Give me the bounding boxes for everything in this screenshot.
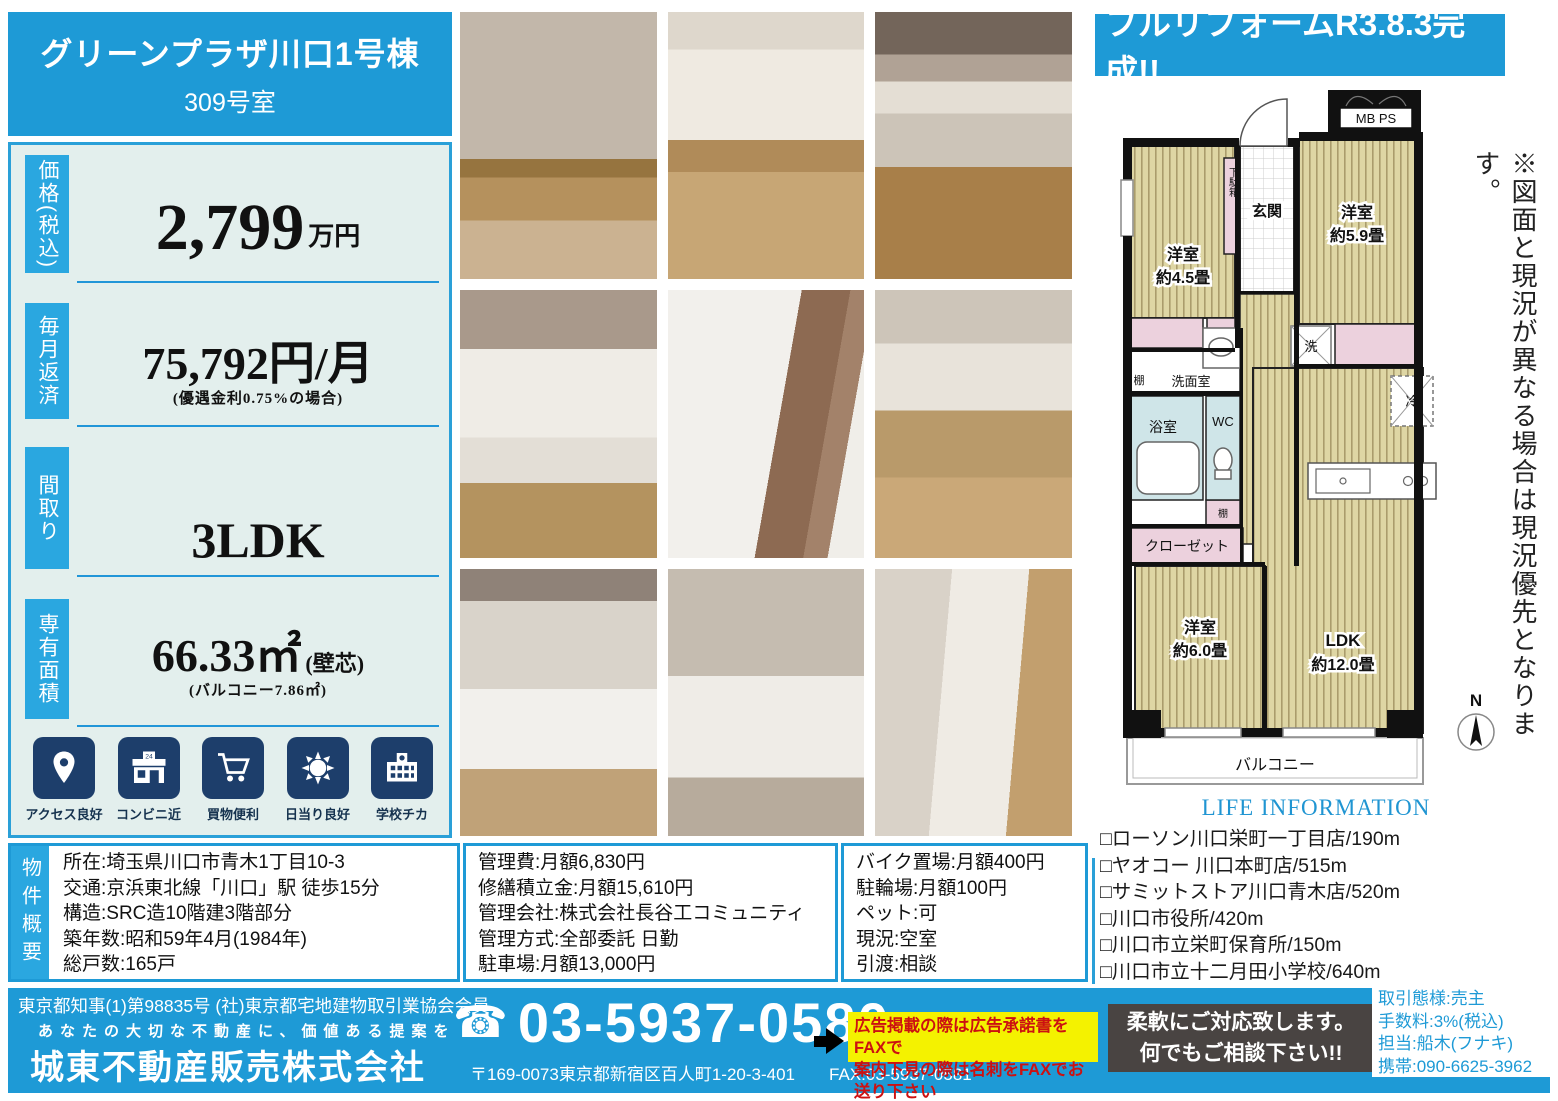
overview-line: 駐輪場:月額100円 (856, 876, 1081, 902)
fp-senmen-label: 洗面室 (1171, 374, 1210, 389)
fax-notice-line2: 案内下見の際は名刺をFAXでお送り下さい (854, 1059, 1092, 1101)
overview-line: 修繕積立金:月額15,610円 (478, 876, 831, 902)
fp-mbps-label: MB PS (1356, 111, 1397, 126)
monthly-row: 毎月返済 75,792円/月 (優遇金利0.75%の場合) (23, 303, 439, 427)
fp-tana2-label: 棚 (1218, 507, 1228, 520)
feature-access: アクセス良好 (25, 737, 103, 823)
life-item: □ヤオコー 川口本町店/515m (1100, 853, 1550, 880)
fp-washer-label: 洗 (1304, 339, 1317, 354)
photo-toilet (668, 569, 865, 836)
building-name: グリーンプラザ川口1号棟 (40, 29, 419, 75)
price-label: 価格(税込) (25, 155, 69, 273)
phone-icon: ☎ (453, 997, 508, 1048)
floor-plan: バルコニー 棚 下駄箱 棚 クローゼット 浴室 WC (1103, 88, 1445, 790)
message-line2: 何でもご相談下さい!! (1108, 1038, 1374, 1069)
fp-genkan-label: 玄関 (1252, 202, 1282, 220)
overview-tab: 物件概要 (11, 846, 49, 979)
agent-contact: 担当:船木(フナキ) (1378, 1033, 1558, 1056)
property-title-bar: グリーンプラザ川口1号棟 309号室 (8, 12, 452, 136)
overview-line: 管理方式:全部委託 日勤 (478, 927, 831, 953)
company-slogan: あなたの大切な不動産に、価値ある提案を (38, 1020, 456, 1041)
life-item: □川口市立栄町保育所/150m (1100, 932, 1550, 959)
sun-icon (287, 737, 349, 799)
feature-conbini-label: コンビニ近 (110, 804, 188, 823)
overview-line: 構造:SRC造10階建3階部分 (63, 901, 453, 927)
feature-school: 学校チカ (363, 737, 441, 823)
feature-school-label: 学校チカ (363, 804, 441, 823)
price-row: 価格(税込) 2,799 万円 (23, 155, 439, 283)
life-information-bracket (1092, 858, 1095, 984)
feature-conbini: 24 コンビニ近 (110, 737, 188, 823)
overview-line: 総戸数:165戸 (63, 952, 453, 978)
photo-living-counter (668, 12, 865, 279)
arrow-right-icon (814, 1028, 844, 1054)
area-note: (バルコニー7.86㎡) (77, 679, 439, 700)
overview-line: ペット:可 (856, 901, 1081, 927)
price-value: 2,799 (156, 191, 305, 264)
renovation-banner: フルリフォームR3.8.3完成!! (1095, 14, 1505, 76)
location-pin-icon (33, 737, 95, 799)
overview-line: 引渡:相談 (856, 952, 1081, 978)
feature-access-label: アクセス良好 (25, 804, 103, 823)
school-icon (371, 737, 433, 799)
compass-n-label: N (1470, 691, 1482, 710)
fp-bath-label: 浴室 (1149, 419, 1177, 435)
fp-room1-label: 洋室 (1167, 245, 1199, 264)
photo-entrance-hallway (460, 12, 657, 279)
photo-room-closet (875, 569, 1072, 836)
life-item: □サミットストア川口青木店/520m (1100, 879, 1550, 906)
fp-room2-size: 約5.9畳 (1330, 226, 1384, 245)
area-value-area: 66.33㎡ (壁芯) (バルコニー7.86㎡) (77, 603, 439, 727)
overview-line: 管理費:月額6,830円 (478, 850, 831, 876)
life-item: □ローソン川口栄町一丁目店/190m (1100, 826, 1550, 853)
overview-box-1: 物件概要 所在:埼玉県川口市青木1丁目10-3 交通:京浜東北線「川口」駅 徒歩… (8, 843, 460, 982)
agent-fee: 手数料:3%(税込) (1378, 1011, 1558, 1034)
message-box: 柔軟にご対応致します。 何でもご相談下さい!! (1108, 1004, 1374, 1072)
overview-line: 築年数:昭和59年4月(1984年) (63, 927, 453, 953)
agent-mobile: 携帯:090-6625-3962 (1378, 1056, 1558, 1079)
fp-ldk-label: LDK (1326, 631, 1362, 650)
feature-shopping-label: 買物便利 (194, 804, 272, 823)
monthly-value-area: 75,792円/月 (優遇金利0.75%の場合) (77, 307, 439, 427)
feature-icons-row: アクセス良好 24 コンビニ近 (25, 737, 441, 823)
area-unit: (壁芯) (305, 651, 364, 676)
layout-value: 3LDK (191, 512, 324, 568)
fp-room3-size: 約6.0畳 (1173, 641, 1227, 660)
fp-room3-label: 洋室 (1184, 618, 1216, 637)
fax-notice-box: 広告掲載の際は広告承諾書をFAXで 案内下見の際は名刺をFAXでお送り下さい (848, 1012, 1098, 1062)
photo-washbasin (460, 569, 657, 836)
message-line1: 柔軟にご対応致します。 (1108, 1007, 1374, 1038)
room-number: 309号室 (184, 83, 276, 119)
svg-text:24: 24 (145, 754, 153, 761)
fp-ldk-size: 約12.0畳 (1311, 655, 1374, 674)
photo-kitchen (460, 290, 657, 557)
fp-room2-label: 洋室 (1341, 203, 1373, 222)
photo-living-windows (875, 12, 1072, 279)
postal-address: 〒169-0073東京都新宿区百人町1-20-3-401 (470, 1065, 795, 1084)
monthly-label: 毎月返済 (25, 303, 69, 419)
spec-panel: 価格(税込) 2,799 万円 毎月返済 75,792円/月 (優遇金利0.75… (8, 142, 452, 838)
flyer-page: グリーンプラザ川口1号棟 309号室 価格(税込) 2,799 万円 毎月返済 … (0, 0, 1558, 1101)
layout-value-area: 3LDK (77, 451, 439, 577)
overview-line: 駐車場:月額13,000円 (478, 952, 831, 978)
fp-tana3-label: 棚 (1134, 373, 1145, 387)
fp-room1-size: 約4.5畳 (1156, 268, 1210, 287)
area-value: 66.33㎡ (152, 630, 302, 681)
price-unit: 万円 (308, 222, 360, 251)
overview-line: バイク置場:月額400円 (856, 850, 1081, 876)
footer-bar: 東京都知事(1)第98835号 (社)東京都宅地建物取引業協会会員 あなたの大切… (8, 988, 1550, 1093)
fax-notice-line1: 広告掲載の際は広告承諾書をFAXで (854, 1015, 1092, 1059)
life-information-title: LIFE INFORMATION (1098, 795, 1534, 821)
monthly-value: 75,792円/月 (77, 341, 439, 387)
license-text: 東京都知事(1)第98835号 (社)東京都宅地建物取引業協会会員 (18, 993, 490, 1018)
convenience-store-icon: 24 (118, 737, 180, 799)
life-item: □川口市役所/420m (1100, 906, 1550, 933)
layout-row: 間取り 3LDK (23, 447, 439, 577)
overview-line: 現況:空室 (856, 927, 1081, 953)
monthly-note: (優遇金利0.75%の場合) (77, 387, 439, 408)
overview-line: 所在:埼玉県川口市青木1丁目10-3 (63, 850, 453, 876)
fp-wc-label: WC (1212, 414, 1234, 429)
feature-sunlight: 日当り良好 (279, 737, 357, 823)
fp-balcony-label: バルコニー (1235, 757, 1315, 774)
area-label: 専有面積 (25, 599, 69, 719)
agent-type: 取引態様:売主 (1378, 988, 1558, 1011)
overview-box-2: 管理費:月額6,830円 修繕積立金:月額15,610円 管理会社:株式会社長谷… (463, 843, 838, 982)
photo-living-balcony (875, 290, 1072, 557)
photo-bathroom (668, 290, 865, 557)
overview-line: 交通:京浜東北線「川口」駅 徒歩15分 (63, 876, 453, 902)
shopping-cart-icon (202, 737, 264, 799)
price-value-area: 2,799 万円 (77, 161, 439, 283)
overview-box-3: バイク置場:月額400円 駐輪場:月額100円 ペット:可 現況:空室 引渡:相… (841, 843, 1088, 982)
area-row: 専有面積 66.33㎡ (壁芯) (バルコニー7.86㎡) (23, 599, 439, 727)
life-item: □川口市立十二月田小学校/640m (1100, 959, 1550, 986)
photo-grid (460, 12, 1072, 836)
layout-label: 間取り (25, 447, 69, 569)
company-name: 城東不動産販売株式会社 (30, 1040, 426, 1089)
life-information-list: □ローソン川口栄町一丁目店/190m □ヤオコー 川口本町店/515m □サミッ… (1100, 826, 1550, 985)
agent-info-box: 取引態様:売主 手数料:3%(税込) 担当:船木(フナキ) 携帯:090-662… (1372, 985, 1558, 1077)
compass-icon: N (1452, 688, 1500, 765)
feature-sunlight-label: 日当り良好 (279, 804, 357, 823)
floorplan-disclaimer: ※図面と現況が異なる場合は現況優先となります。 (1468, 150, 1542, 750)
fp-closet-label: クローゼット (1145, 538, 1229, 554)
feature-shopping: 買物便利 (194, 737, 272, 823)
overview-line: 管理会社:株式会社長谷工コミュニティ (478, 901, 831, 927)
